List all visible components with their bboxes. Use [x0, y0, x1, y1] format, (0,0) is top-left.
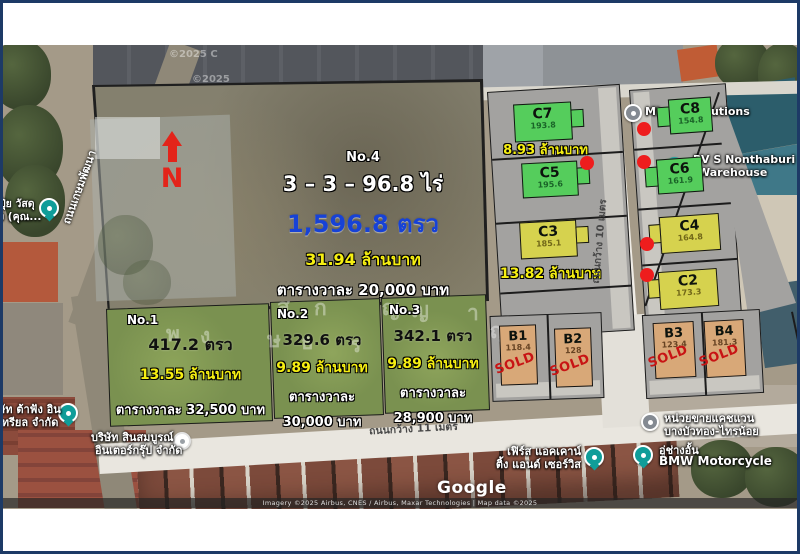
unit-area: 161.9	[658, 176, 702, 187]
unit-annex	[656, 106, 670, 127]
place-pin-bmw[interactable]	[633, 445, 653, 465]
roof-patch	[3, 303, 63, 395]
place-pin-cashvan[interactable]	[641, 413, 659, 431]
place-label-cashvan-2[interactable]: บางบัวทอง-ไทรน้อย	[664, 422, 759, 440]
north-arrow: N	[153, 131, 191, 192]
unit-c3: C3 185.1	[519, 220, 578, 260]
north-arrow-head	[162, 131, 182, 146]
plot3-area-text: 342.1 ตรว	[379, 324, 487, 348]
place-pin-first-accounting[interactable]	[584, 447, 604, 467]
place-label-dafang-2[interactable]: เทรียล จำกัด	[3, 413, 58, 431]
plot2-no: No.2	[277, 307, 308, 321]
plot4-rai: 3 – 3 – 96.8 ไร่	[253, 168, 473, 201]
plot3-labels: 342.1 ตรว 9.89 ล้านบาท ตารางวาละ 28,900 …	[379, 324, 487, 428]
plot4-per-wah: ตารางวาละ 20,000 บาท	[253, 278, 473, 302]
red-dot-marker	[640, 237, 654, 251]
unit-area: 154.8	[670, 116, 711, 127]
plot2-labels: 329.6 ตรว 9.89 ล้านบาท ตารางวาละ 30,000 …	[266, 328, 378, 432]
map-attribution: Imagery ©2025 Airbus, CNES / Airbus, Max…	[3, 498, 797, 508]
unit-area: 193.8	[515, 121, 571, 132]
imagery-watermark: ©2025	[192, 74, 230, 85]
plot4-area-text: 1,596.8 ตรว	[253, 204, 473, 243]
plot2-price: 9.89 ล้านบาท	[266, 357, 378, 379]
google-logo[interactable]: Google	[437, 478, 507, 498]
place-label-first-accounting-2[interactable]: ติ้ง แอนด์ เซอร์วิส	[465, 455, 581, 473]
unit-b1: B1 118.4 SOLD	[499, 324, 538, 385]
plot1-price: 13.55 ล้านบาท	[113, 364, 268, 386]
imagery-watermark: ©2025 C	[169, 49, 218, 60]
unit-annex	[644, 167, 658, 188]
unit-area: 185.1	[521, 239, 576, 250]
plot2-per-wah: ตารางวาละ	[266, 386, 378, 407]
place-label-pvs-2[interactable]: Warehouse	[698, 166, 767, 179]
map-canvas[interactable]: พ ง ส ก ษ ธ ร ญ ญ า ญ ©2025 C ©2025 Mira…	[3, 45, 797, 509]
place-label-sinsomboon-2[interactable]: อินเตอร์กรุ๊ป จำกัด	[95, 441, 182, 459]
place-label-fertilizer-2[interactable]: ง (คุณ...	[3, 208, 41, 225]
orange-roof-patch	[3, 242, 58, 302]
north-label: N	[153, 165, 191, 192]
roof-patch	[543, 45, 683, 89]
plot1-labels: 417.2 ตรว 13.55 ล้านบาท ตารางวาละ 32,500…	[113, 333, 268, 420]
plot4-labels: No.4 3 – 3 – 96.8 ไร่ 1,596.8 ตรว 31.94 …	[253, 150, 473, 302]
plot3-per-wah: ตารางวาละ	[379, 382, 487, 403]
plot3-price: 9.89 ล้านบาท	[379, 353, 487, 375]
red-dot-marker	[637, 155, 651, 169]
unit-b2: B2 128 SOLD	[554, 327, 593, 387]
plot4-no: No.4	[253, 150, 473, 165]
plot1-no: No.1	[127, 313, 158, 327]
unit-c5: C5 195.6	[521, 161, 579, 199]
unit-area: 195.6	[523, 180, 577, 191]
plot3-no: No.3	[389, 303, 420, 317]
plot2-per-wah-2: 30,000 บาท	[266, 411, 378, 432]
sold-stamp: SOLD	[548, 351, 592, 379]
tree-blob	[123, 260, 171, 305]
red-dot-marker	[640, 268, 654, 282]
place-label-bmw-2[interactable]: BMW Motorcycle	[659, 454, 772, 468]
place-pin-mirage[interactable]	[624, 104, 642, 122]
red-dot-marker	[580, 156, 594, 170]
plot2-area-text: 329.6 ตรว	[266, 328, 378, 352]
unit-annex	[647, 279, 660, 299]
unit-c2: C2 173.3	[658, 268, 720, 310]
unit-annex	[570, 109, 584, 128]
plot1-per-wah: ตารางวาละ 32,500 บาท	[113, 399, 268, 420]
place-label-pvs[interactable]: PV S Nonthaburi	[693, 153, 795, 166]
unit-c8: C8 154.8	[668, 97, 713, 135]
north-arrow-shaft	[168, 146, 177, 162]
unit-c6: C6 161.9	[656, 156, 704, 194]
unit-annex	[575, 226, 589, 244]
unit-c4: C4 164.8	[659, 213, 721, 254]
unit-b4: B4 181.3 SOLD	[704, 319, 747, 378]
plot1-area-text: 417.2 ตรว	[113, 333, 268, 358]
unit-b3: B3 123.4 SOLD	[653, 321, 697, 379]
tree-blob	[691, 440, 753, 498]
tree-blob	[3, 45, 51, 110]
unit-c7: C7 193.8	[513, 102, 573, 143]
c-price-bottom: 13.82 ล้านบาท	[498, 263, 603, 285]
c-price-top: 8.93 ล้านบาท	[498, 139, 593, 160]
plot4-price: 31.94 ล้านบาท	[253, 248, 473, 273]
place-pin-fertilizer[interactable]	[39, 198, 59, 218]
red-dot-marker	[637, 122, 651, 136]
sold-stamp: SOLD	[493, 349, 537, 377]
slide-frame: พ ง ส ก ษ ธ ร ญ ญ า ญ ©2025 C ©2025 Mira…	[0, 0, 800, 554]
place-pin-dafang[interactable]	[58, 403, 78, 423]
